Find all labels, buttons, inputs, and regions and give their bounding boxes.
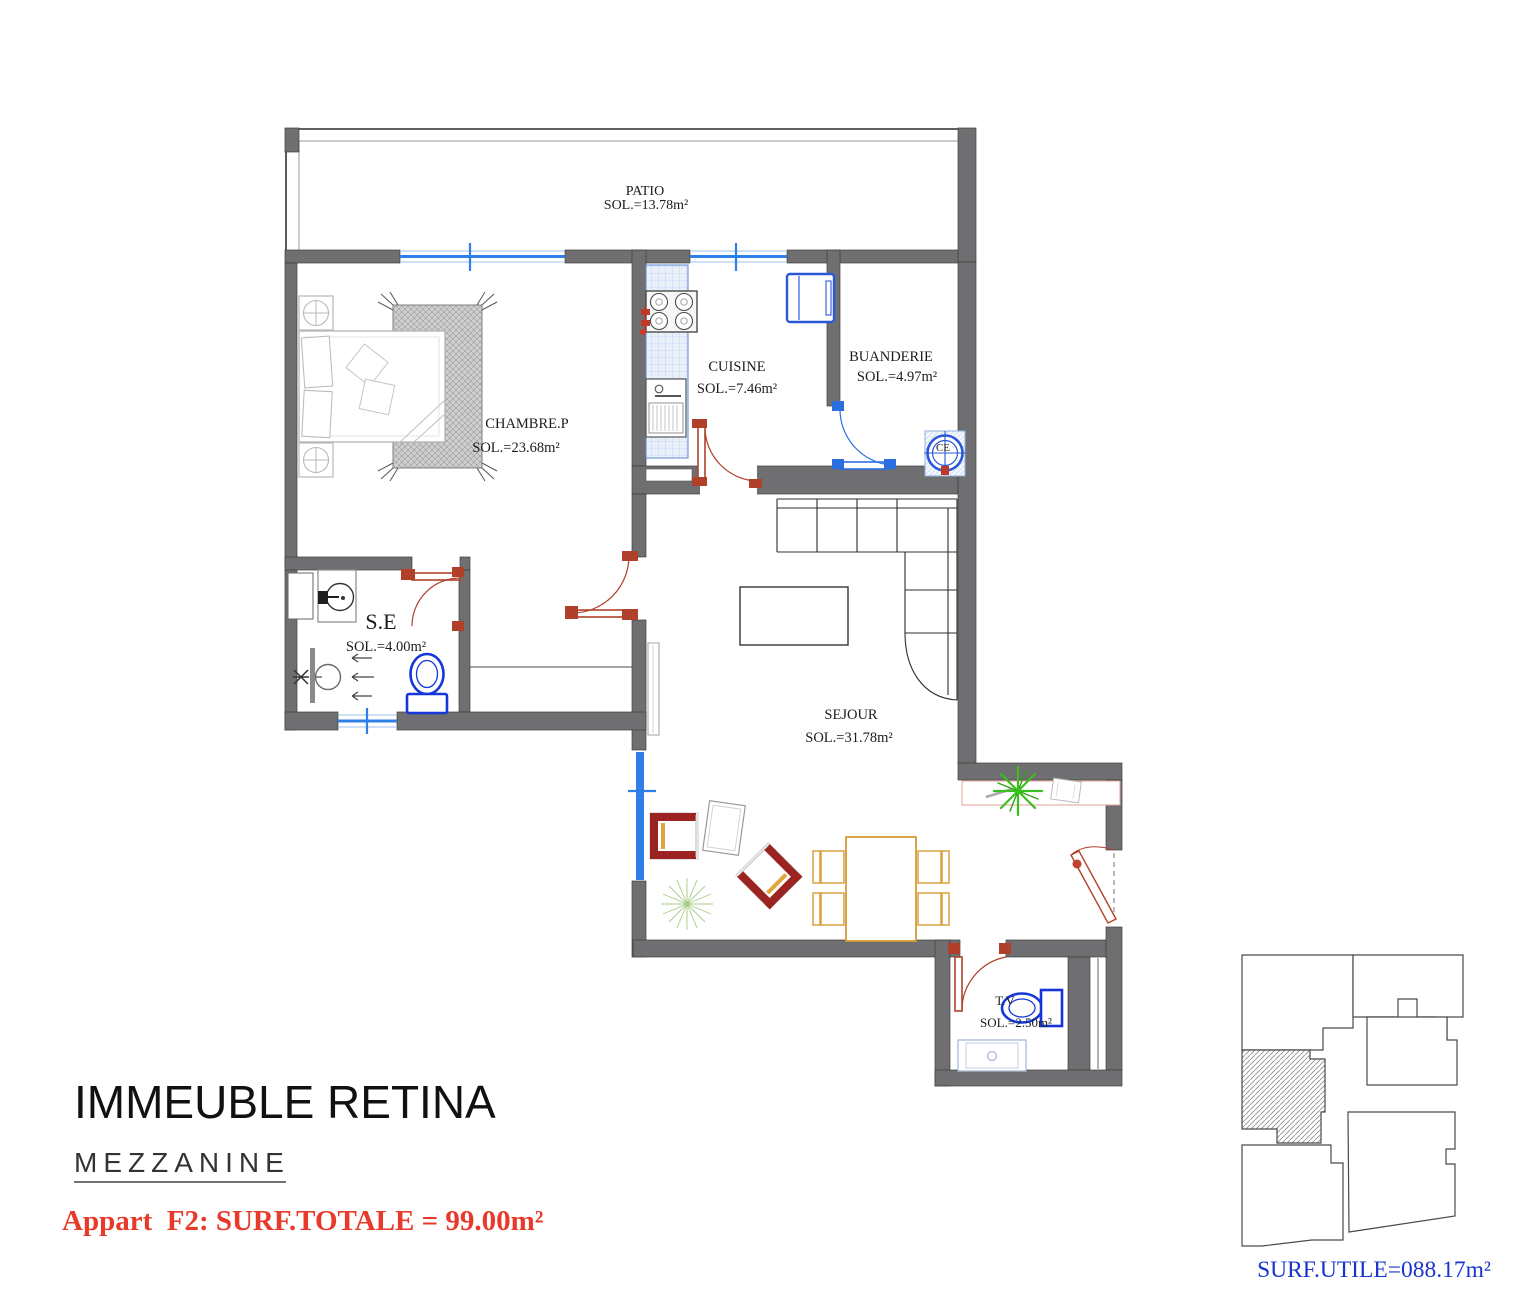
wall-sejour-bottom	[633, 940, 950, 957]
wall-patio-corner	[285, 128, 299, 152]
wall-sejour-left-a	[632, 494, 646, 557]
wall-right	[958, 262, 976, 763]
wall-tv-top	[1006, 940, 1106, 957]
coffee-table	[740, 587, 848, 645]
wall-tv-shaft	[1068, 957, 1090, 1070]
surface-utile-caption: SURF.UTILE=088.17m²	[1257, 1257, 1491, 1283]
patio-area: SOL.=13.78m²	[604, 198, 688, 213]
key-plan-unit	[1367, 1017, 1457, 1085]
kitchen-sink-icon	[646, 379, 686, 437]
se-area: SOL.=4.00m²	[346, 639, 427, 655]
cuisine-name: CUISINE	[708, 359, 765, 375]
wall-sejour-left-b	[632, 620, 646, 750]
book-icon	[1051, 778, 1082, 803]
buanderie-name: BUANDERIE	[849, 349, 933, 365]
apartment-surface-text: Appart F2: SURF.TOTALE = 99.00m²	[62, 1205, 544, 1237]
water-heater-icon: CE	[924, 431, 966, 476]
toilet-icon-se	[407, 654, 447, 713]
chambre-name: CHAMBRE.P	[485, 416, 568, 432]
wall-ext-top	[958, 763, 1122, 780]
key-plan-unit	[1242, 1145, 1343, 1246]
wall-bottom-wing-b	[397, 712, 646, 730]
wall-se-right	[459, 570, 470, 712]
sejour-name: SEJOUR	[824, 707, 878, 723]
wall-se-top-a	[285, 557, 412, 570]
water-heater-label: CE	[936, 442, 950, 454]
wall-bottom-right	[935, 1070, 1122, 1086]
tv-area: SOL.=2.50m²	[980, 1015, 1052, 1030]
wall-right-lower-b	[1106, 927, 1122, 1070]
dining-table	[846, 837, 916, 941]
wall-top-a	[285, 250, 400, 263]
wall-patio-right	[958, 128, 976, 262]
level-subtitle: MEZZANINE	[74, 1147, 290, 1178]
wall-tv-left	[935, 940, 950, 1086]
floor-plan-drawing: CE	[0, 0, 1536, 1303]
floor-plan-page: CE	[0, 0, 1536, 1303]
se-niche	[288, 573, 313, 619]
cuisine-area: SOL.=7.46m²	[697, 381, 778, 397]
se-name: S.E	[365, 609, 396, 634]
page-title: IMMEUBLE RETINA	[74, 1076, 496, 1128]
star-plant-icon	[994, 767, 1042, 815]
wall-left	[285, 263, 297, 730]
buanderie-area: SOL.=4.97m²	[857, 369, 938, 385]
armchair	[650, 813, 698, 859]
key-plan-current-unit	[1242, 1050, 1325, 1143]
tv-console	[648, 643, 659, 735]
key-plan-unit	[1348, 1112, 1455, 1232]
wall-top-b	[565, 250, 690, 263]
washbasin-icon-tv	[958, 1040, 1026, 1071]
bed	[299, 331, 445, 442]
stove-icon	[646, 291, 697, 332]
side-table	[703, 801, 746, 856]
sejour-area: SOL.=31.78m²	[805, 730, 893, 746]
wall-chambre-cuisine	[632, 250, 646, 466]
tv-name: T.V	[995, 993, 1015, 1008]
patio-name: PATIO	[626, 184, 664, 199]
wall-niche	[646, 469, 692, 481]
wall-bottom-wing-a	[285, 712, 338, 730]
chambre-area: SOL.=23.68m²	[472, 440, 560, 456]
washbasin-icon	[318, 570, 356, 622]
fridge-icon	[787, 274, 834, 322]
wall-top-c	[787, 250, 958, 263]
